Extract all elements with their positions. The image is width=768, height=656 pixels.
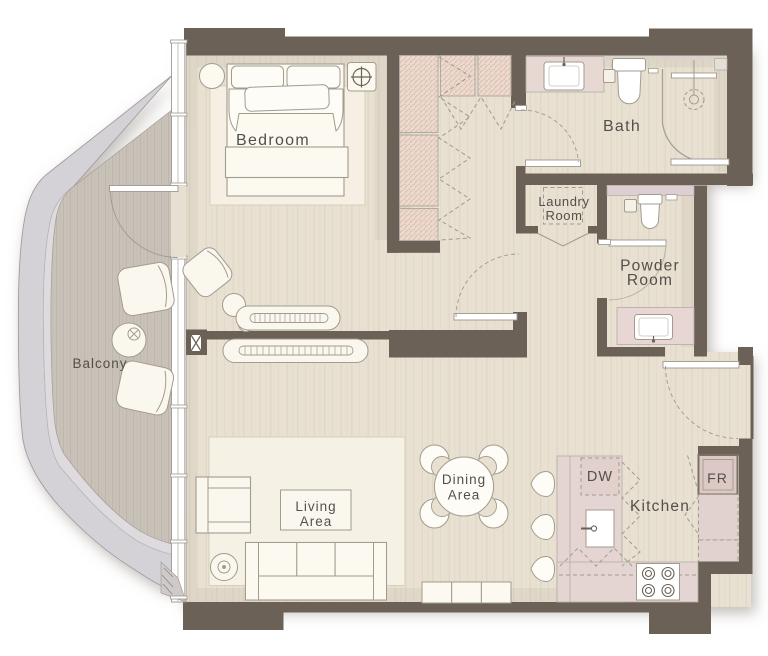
svg-text:Kitchen: Kitchen (630, 498, 690, 515)
svg-text:DW: DW (587, 469, 613, 485)
svg-text:Area: Area (300, 514, 333, 529)
svg-text:Living: Living (295, 499, 336, 514)
svg-text:Bath: Bath (603, 118, 641, 135)
svg-text:Laundry: Laundry (538, 194, 589, 209)
svg-text:Dining: Dining (442, 472, 486, 487)
svg-text:Bedroom: Bedroom (236, 132, 310, 149)
svg-text:Room: Room (627, 272, 673, 289)
svg-text:Room: Room (545, 208, 582, 223)
svg-text:Balcony: Balcony (72, 356, 127, 371)
svg-text:Area: Area (448, 488, 481, 503)
svg-text:FR: FR (707, 470, 728, 486)
